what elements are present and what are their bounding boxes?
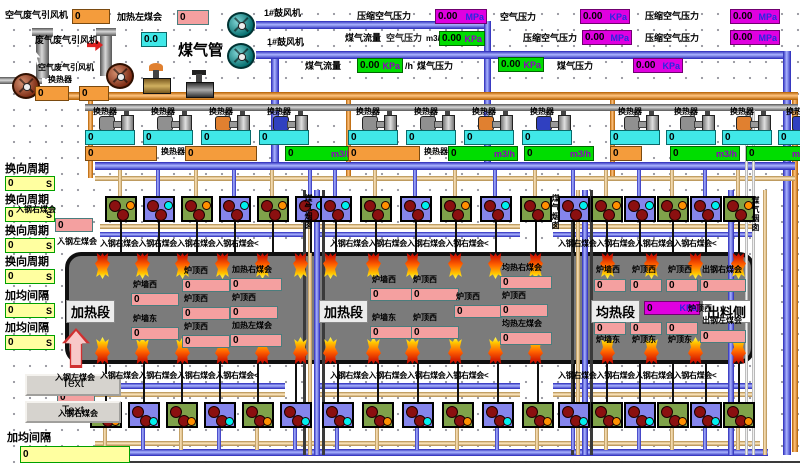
furnace-temp-readout[interactable]: 0	[454, 305, 502, 318]
air-exhaust-fan2-label: 空气废气引风机	[38, 64, 94, 73]
pipe	[95, 449, 768, 456]
pipe	[100, 232, 305, 237]
furnace-temp-label: 炉墙西	[596, 266, 620, 275]
value-text: 0.00	[585, 32, 604, 43]
furnace-temp-readout[interactable]: 0	[131, 293, 179, 306]
value-text: 0.00	[733, 32, 752, 43]
pipe	[308, 170, 312, 196]
burner-block[interactable]	[690, 196, 722, 222]
value-text: 0	[233, 279, 239, 290]
scada-screen: 空气废气引风机 0 加热左煤会 0 1#鼓风机 1#鼓风机 压缩空气压力 0.0…	[0, 0, 800, 464]
burner-block[interactable]	[558, 196, 590, 222]
reversing-period-field[interactable]: 0S	[5, 269, 55, 284]
value-text: 0.00	[733, 11, 752, 22]
value-text: 0	[703, 280, 709, 291]
value-text: 0	[669, 132, 675, 143]
value-text: 0	[180, 12, 186, 23]
burner-tag-chain: 入钢右煤会入钢右煤会入钢右煤会入钢右煤会<	[100, 370, 306, 381]
pipe	[95, 441, 760, 446]
burner-block[interactable]	[166, 402, 198, 428]
pipe	[670, 170, 674, 196]
pipe	[141, 428, 145, 450]
burner-port-icon	[193, 209, 205, 221]
compressed-air-pressure-label: 压缩空气压力	[357, 12, 411, 22]
flow-readout[interactable]: 0m3/h	[670, 146, 740, 161]
value-text: 0	[409, 132, 415, 143]
unit-text: m3/h	[494, 149, 515, 159]
burner-port-icon	[117, 209, 129, 221]
burner-port-icon	[225, 417, 234, 426]
burner-block[interactable]	[657, 402, 689, 428]
heating-interval-field[interactable]: 0S	[5, 335, 55, 350]
burner-block[interactable]	[322, 402, 354, 428]
compressed-air-pressure-label: 压缩空气压力	[523, 34, 577, 44]
value-text: 0	[58, 220, 64, 231]
furnace-temp-label: 均热右煤会	[502, 264, 542, 273]
compressed-air-pressure-label: 压缩空气压力	[645, 34, 699, 44]
pipe	[703, 428, 707, 450]
furnace-temp-label: 出钢左煤会	[702, 317, 742, 326]
value-text: 0.00	[583, 11, 602, 22]
pipe	[255, 428, 259, 450]
heat-exchanger-label: 换热器	[530, 108, 554, 117]
burner-port-icon	[372, 209, 384, 221]
furnace-temp-label: 出钢右煤会	[702, 266, 742, 275]
burner-port-icon	[421, 201, 430, 210]
heat-exchanger-label: 换热器	[209, 108, 233, 117]
value-text: 0	[451, 148, 457, 159]
value-text: 0.00	[442, 33, 461, 44]
burner-block[interactable]	[657, 196, 689, 222]
pipe	[375, 428, 379, 450]
reversing-period-field[interactable]: 0S	[5, 238, 55, 253]
burner-port-icon	[612, 417, 621, 426]
pipe	[95, 162, 795, 170]
unit-text: KPa	[382, 61, 400, 71]
furnace-temp-readout[interactable]: 0	[500, 304, 548, 317]
pipe	[637, 428, 641, 450]
exchanger-temp-readout[interactable]: 0	[406, 130, 456, 145]
pipe	[495, 428, 499, 450]
pipe	[270, 170, 274, 196]
burner-port-icon	[678, 417, 687, 426]
air-exhaust-fan-value[interactable]: 0	[72, 9, 110, 24]
burner-block[interactable]	[280, 402, 312, 428]
burner-block[interactable]	[723, 402, 755, 428]
pipe	[415, 428, 419, 450]
furnace-temp-label: 炉顶西	[502, 292, 526, 301]
furnace-temp-readout[interactable]: 0	[182, 335, 230, 348]
furnace-temp-readout[interactable]: 0	[230, 306, 278, 319]
temp-readout[interactable]: 0	[85, 146, 157, 161]
burner-port-icon	[612, 201, 621, 210]
furnace-temp-readout[interactable]: 0	[411, 326, 459, 339]
blower-fan-icon[interactable]	[227, 43, 255, 69]
burner-port-icon	[492, 209, 504, 221]
value-text: 0	[8, 240, 14, 251]
heating-interval-field[interactable]: 0S	[5, 303, 55, 318]
value-text: 0	[75, 11, 81, 22]
exhaust-fan-readout[interactable]: 0.0	[141, 32, 167, 47]
value-text: 0.00	[501, 59, 520, 70]
air-pressure-overlay-label: 空气压力	[386, 34, 422, 44]
unit-text: S	[46, 272, 52, 282]
burner-port-icon	[301, 417, 310, 426]
value-text: 0	[503, 277, 509, 288]
burner-port-icon	[461, 201, 470, 210]
unit-text: MPa	[610, 33, 629, 43]
pipe	[293, 428, 297, 450]
furnace-temp-label: 炉顶西	[232, 294, 256, 303]
furnace-temp-readout[interactable]: 0	[594, 322, 626, 335]
burner-port-icon	[501, 201, 510, 210]
reversing-period-label: 换向周期	[5, 256, 49, 268]
burner-port-icon	[263, 417, 272, 426]
value-text: 0	[633, 280, 639, 291]
value-text: 0	[185, 336, 191, 347]
furnace-temp-readout[interactable]: 0	[131, 327, 179, 340]
pipe	[335, 428, 339, 450]
value-text: 0.00	[360, 60, 379, 71]
unit-text: S	[46, 338, 52, 348]
furnace-temp-readout[interactable]: 0	[666, 322, 698, 335]
burner-block[interactable]	[520, 196, 552, 222]
pipe	[315, 224, 520, 229]
pipe	[333, 170, 337, 196]
value-text: 0	[351, 132, 357, 143]
burner-port-icon	[645, 417, 654, 426]
value-text: 0	[88, 132, 94, 143]
value-text: 0	[185, 280, 191, 291]
burner-block[interactable]	[105, 196, 137, 222]
heat-exchanger-label: 换热器	[618, 108, 642, 117]
burner-block[interactable]	[143, 196, 175, 222]
value-text: 0	[134, 328, 140, 339]
burner-port-icon	[543, 417, 552, 426]
heat-exchanger-label: 换热器	[414, 108, 438, 117]
furnace-temp-label: 加热左煤会	[232, 322, 272, 331]
temp-readout[interactable]: 0	[610, 146, 642, 161]
air-pressure-readout[interactable]: 0.00KPa	[580, 9, 630, 24]
burner-block[interactable]	[181, 196, 213, 222]
blower-fan-icon[interactable]	[227, 12, 255, 38]
burner-port-icon	[541, 201, 550, 210]
unit-text: MPa	[465, 12, 484, 22]
burner-port-icon	[744, 417, 753, 426]
pipe	[60, 461, 800, 463]
pipe	[413, 170, 417, 196]
pipe	[217, 428, 221, 450]
furnace-temp-label: 炉顶东	[632, 336, 656, 345]
heating-interval-label: 加均间隔	[5, 290, 49, 302]
steel-entry-left-label: 入钢左煤会	[57, 238, 97, 247]
pipe	[533, 170, 537, 196]
unit-text: KPa	[609, 12, 627, 22]
furnace-temp-readout[interactable]: 0	[230, 278, 282, 291]
exchanger-temp-readout[interactable]: 0	[464, 130, 514, 145]
pipe	[455, 428, 459, 450]
burner-block[interactable]	[624, 402, 656, 428]
exchanger-temp-readout[interactable]: 0	[201, 130, 251, 145]
burner-block[interactable]	[442, 402, 474, 428]
furnace-temp-label: 炉墙东	[596, 336, 620, 345]
pipe	[763, 190, 767, 455]
steel-entry-readout[interactable]: 0	[55, 218, 93, 232]
burner-port-icon	[126, 201, 135, 210]
flow-readout[interactable]: 0m3/h	[746, 146, 800, 161]
furnace-temp-label: 均热左煤会	[502, 320, 542, 329]
pipe	[604, 428, 608, 450]
unit-text: m3/h	[792, 149, 800, 159]
heat-exchanger-label: 换热器	[786, 108, 800, 117]
value-text: 0	[503, 333, 509, 344]
pipe	[493, 170, 497, 196]
unit-text: S	[46, 241, 52, 251]
value-text: 0	[134, 294, 140, 305]
furnace-temp-label: 炉顶西	[668, 266, 692, 275]
gas-stack-label: 煤气烟囱	[550, 194, 561, 230]
unit-text: m3/h	[570, 149, 591, 159]
burner-block[interactable]	[522, 402, 554, 428]
burner-block[interactable]	[591, 402, 623, 428]
gas-regulator-valve[interactable]	[143, 70, 169, 94]
burner-block[interactable]	[257, 196, 289, 222]
fan-readout[interactable]: 0	[79, 86, 109, 101]
compressed-air-pressure-readout[interactable]: 0.00MPa	[582, 30, 632, 45]
burner-port-icon	[452, 209, 464, 221]
value-text: 0	[647, 303, 653, 314]
burner-block[interactable]	[362, 402, 394, 428]
value-text: 0	[527, 148, 533, 159]
flow-readout[interactable]: 0m3/h	[524, 146, 594, 161]
burner-block[interactable]	[480, 196, 512, 222]
exchanger-temp-readout[interactable]: 0	[348, 130, 398, 145]
pipe	[179, 428, 183, 450]
burner-tag-chain: 入钢右煤会入钢右煤会入钢右煤会入钢右煤会<	[558, 238, 754, 249]
furnace-temp-readout[interactable]: 0	[182, 307, 230, 320]
burner-block[interactable]	[440, 196, 472, 222]
burner-block[interactable]	[242, 402, 274, 428]
value-text: 0	[669, 280, 675, 291]
heat-exchanger-label: 换热器	[151, 108, 175, 117]
gas-flow-readout[interactable]: 0.00KPa	[439, 31, 485, 46]
heat-exchanger-label: 换热器	[674, 108, 698, 117]
value-text: 0	[414, 289, 420, 300]
burner-port-icon	[332, 209, 344, 221]
value-text: 0	[669, 323, 675, 334]
gas-stack-label: 煤气烟囱	[750, 196, 761, 232]
value-text: 0	[288, 148, 294, 159]
per-hour-label: /h	[405, 62, 413, 72]
burner-port-icon	[343, 417, 352, 426]
value-text: 0.0	[144, 34, 158, 45]
burner-block[interactable]	[591, 196, 623, 222]
value-text: 0	[204, 132, 210, 143]
heat-exchanger-label: 换热器	[730, 108, 754, 117]
fan-readout[interactable]: 0	[35, 86, 69, 101]
burner-port-icon	[187, 417, 196, 426]
exchanger-temp-readout[interactable]: 0	[522, 130, 572, 145]
burner-port-icon	[735, 209, 747, 221]
induced-draft-fan-icon[interactable]	[106, 63, 134, 89]
furnace-temp-label: 炉顶东	[668, 336, 692, 345]
compressed-air-pressure-readout[interactable]: 0.00MPa	[435, 9, 487, 24]
burner-port-icon	[702, 209, 714, 221]
gas-main-valve[interactable]	[186, 74, 212, 96]
section-name-heating1: 加热段	[66, 300, 115, 323]
burner-port-icon	[463, 417, 472, 426]
pipe	[703, 170, 707, 196]
exchanger-temp-readout[interactable]: 0	[666, 130, 716, 145]
value-text: 0	[633, 323, 639, 334]
unit-text: KPa	[662, 61, 680, 71]
temp-readout[interactable]: 0	[185, 146, 257, 161]
furnace-temp-readout[interactable]: 0	[630, 279, 662, 292]
unit-text: m3/h	[716, 149, 737, 159]
furnace-temp-readout[interactable]: 0	[182, 279, 230, 292]
air-pressure-label: 空气压力	[500, 13, 536, 23]
furnace-temp-readout[interactable]: 0	[411, 288, 459, 301]
burner-port-icon	[678, 201, 687, 210]
furnace-temp-readout[interactable]: 0	[230, 334, 282, 347]
steel-entry-right-label: 入钢右煤会	[58, 410, 98, 419]
pipe	[637, 170, 641, 196]
pipe	[670, 428, 674, 450]
gas-pressure-b-readout[interactable]: 0.00KPa	[633, 58, 683, 73]
burner-port-icon	[149, 417, 158, 426]
heating-left-value[interactable]: 0	[177, 10, 209, 25]
burner-port-icon	[711, 201, 720, 210]
exchanger-temp-readout[interactable]: 0	[778, 130, 800, 145]
heat-exchanger-label: 换热器	[356, 108, 380, 117]
unit-overlay-label: m3/	[426, 35, 440, 44]
pipe	[96, 28, 116, 36]
steel-entry-right-label: 入钢右煤会	[16, 206, 56, 215]
value-text: 0	[8, 178, 14, 189]
burner-port-icon	[532, 209, 544, 221]
value-text: 0	[185, 308, 191, 319]
exchanger-temp-readout[interactable]: 0	[610, 130, 660, 145]
burner-tag-chain: 入钢右煤会入钢右煤会入钢右煤会入钢右煤会<	[330, 238, 536, 249]
pipe	[118, 170, 122, 196]
gas-stack-label: 煤气烟囱	[303, 194, 314, 230]
heat-exchanger-label: 换热器	[48, 76, 72, 85]
furnace-temp-readout[interactable]: 0	[700, 279, 746, 292]
burner-block[interactable]	[204, 402, 236, 428]
value-text: 0	[8, 337, 14, 348]
heating-interval-bottom-label: 加均间隔	[7, 432, 51, 444]
heat-exchanger-label: 换热器	[424, 148, 448, 157]
burner-port-icon	[381, 201, 390, 210]
value-text: 0	[188, 148, 194, 159]
burner-block[interactable]	[128, 402, 160, 428]
exchanger-temp-readout[interactable]: 0	[85, 130, 135, 145]
value-text: 0	[673, 148, 679, 159]
gas-flow2-readout[interactable]: 0.00KPa	[357, 58, 403, 73]
heat-exchanger-label: 换热器	[93, 108, 117, 117]
value-text: 0	[613, 148, 619, 159]
burner-block[interactable]	[219, 196, 251, 222]
furnace-temp-readout[interactable]: 0	[666, 279, 698, 292]
compressed-air-pressure-label: 压缩空气压力	[645, 12, 699, 22]
burner-port-icon	[269, 209, 281, 221]
burner-port-icon	[579, 201, 588, 210]
flow-readout[interactable]: 0m3/h	[448, 146, 518, 161]
burner-port-icon	[164, 201, 173, 210]
pipe	[736, 170, 740, 196]
value-text: 0	[88, 148, 94, 159]
unit-text: KPa	[464, 34, 482, 44]
pipe	[194, 170, 198, 196]
burner-block[interactable]	[558, 402, 590, 428]
burner-block[interactable]	[624, 196, 656, 222]
burner-port-icon	[636, 209, 648, 221]
exchanger-temp-readout[interactable]: 0	[259, 130, 309, 145]
unit-text: MPa	[758, 12, 777, 22]
burner-port-icon	[669, 209, 681, 221]
pipe	[315, 232, 520, 237]
burner-block[interactable]	[320, 196, 352, 222]
burner-port-icon	[155, 209, 167, 221]
unit-text: MPa	[758, 33, 777, 43]
burner-block[interactable]	[402, 402, 434, 428]
burner-block[interactable]	[360, 196, 392, 222]
flow-readout[interactable]: 0m3/h	[285, 146, 355, 161]
value-text: 0	[262, 132, 268, 143]
pipe	[100, 224, 305, 229]
temp-readout[interactable]: 0	[348, 146, 420, 161]
heating-interval-bottom-field[interactable]: 0	[20, 446, 130, 463]
unit-text: S	[46, 179, 52, 189]
value-text: 0	[146, 132, 152, 143]
gas-pressure-a-readout[interactable]: 0.00KPa	[498, 57, 544, 72]
burner-block[interactable]	[690, 402, 722, 428]
pipe	[571, 428, 575, 450]
compressed-air-pressure-readout[interactable]: 0.00MPa	[730, 30, 780, 45]
value-text: 0	[597, 323, 603, 334]
value-text: 0	[749, 148, 755, 159]
compressed-air-pressure-readout[interactable]: 0.00MPa	[730, 9, 780, 24]
burner-block[interactable]	[482, 402, 514, 428]
pipe	[373, 170, 377, 196]
gas-pressure-b-label: 煤气压力	[557, 62, 593, 72]
value-text: 0	[613, 132, 619, 143]
unit-text: S	[46, 306, 52, 316]
unit-text: KPa	[523, 60, 541, 70]
value-text: 0	[373, 289, 379, 300]
heat-exchanger-label: 换热器	[267, 108, 291, 117]
burner-block[interactable]	[400, 196, 432, 222]
exchanger-temp-readout[interactable]: 0	[722, 130, 772, 145]
furnace-temp-readout[interactable]: 0	[700, 330, 746, 343]
exchanger-temp-readout[interactable]: 0	[143, 130, 193, 145]
section-name-heating2: 加热段	[319, 300, 368, 323]
burner-port-icon	[423, 417, 432, 426]
furnace-temp-readout[interactable]: 0	[594, 279, 626, 292]
burner-port-icon	[603, 209, 615, 221]
burner-port-icon	[503, 417, 512, 426]
value-text: 0	[781, 132, 787, 143]
furnace-temp-readout[interactable]: 0	[630, 322, 662, 335]
furnace-temp-label: 炉顶西	[184, 323, 208, 332]
reversing-period-field[interactable]: 0S	[5, 176, 55, 191]
furnace-temp-label: 炉墙东	[133, 315, 157, 324]
value-text: 0	[525, 132, 531, 143]
furnace-temp-readout[interactable]: 0	[500, 276, 552, 289]
furnace-temp-readout[interactable]: 0	[500, 332, 552, 345]
value-text: 0	[597, 280, 603, 291]
pipe	[156, 170, 160, 196]
